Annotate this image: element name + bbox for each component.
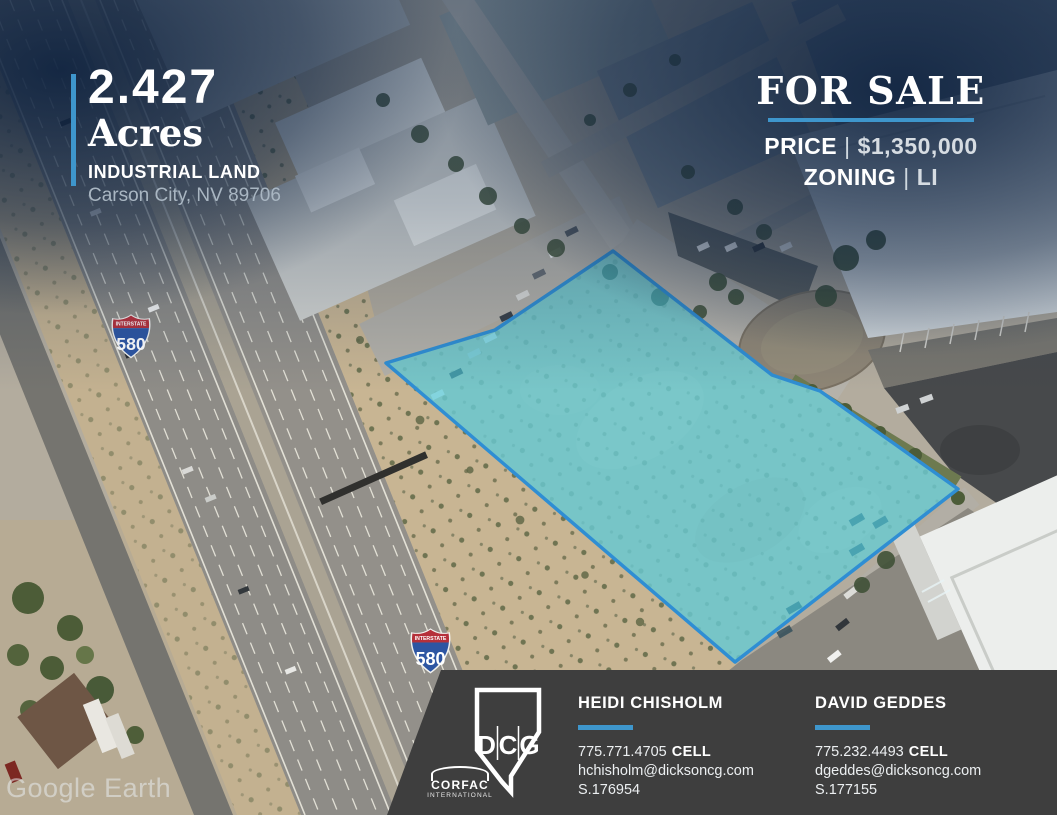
corfac-logo: CORFAC INTERNATIONAL bbox=[425, 766, 495, 800]
phone-number: 775.232.4493 bbox=[815, 744, 904, 760]
agent-card: HEIDI CHISHOLM 775.771.4705CELL hchishol… bbox=[578, 694, 828, 800]
zoning-separator: | bbox=[896, 164, 916, 190]
phone-type: CELL bbox=[672, 744, 711, 760]
agent-name: HEIDI CHISHOLM bbox=[578, 694, 828, 713]
agent-email: hchisholm@dicksoncg.com bbox=[578, 762, 828, 781]
property-type: INDUSTRIAL LAND bbox=[88, 162, 281, 183]
agent-phone: 775.232.4493CELL bbox=[815, 743, 1057, 762]
interstate-580-shield-icon: INTERSTATE 580 bbox=[111, 314, 151, 359]
agent-license: S.176954 bbox=[578, 781, 828, 800]
acreage-value: 2.427 bbox=[88, 64, 281, 112]
accent-bar bbox=[71, 74, 76, 186]
property-location: Carson City, NV 89706 bbox=[88, 185, 281, 207]
agent-accent-bar bbox=[815, 725, 870, 730]
zoning-line: ZONING|LI bbox=[804, 162, 938, 193]
acreage-unit: Acres bbox=[88, 114, 281, 153]
agent-name: DAVID GEDDES bbox=[815, 694, 1057, 713]
price-label: PRICE bbox=[764, 133, 837, 159]
interstate-580-shield-icon: INTERSTATE 580 bbox=[410, 628, 451, 674]
shield-number: 580 bbox=[415, 649, 445, 669]
for-sale-headline: FOR SALE bbox=[756, 70, 986, 112]
agent-license: S.177155 bbox=[815, 781, 1057, 800]
price-line: PRICE|$1,350,000 bbox=[764, 131, 977, 162]
property-summary: 2.427 Acres INDUSTRIAL LAND Carson City,… bbox=[88, 64, 281, 207]
corfac-name: CORFAC bbox=[425, 778, 495, 792]
headline-underline bbox=[768, 118, 974, 122]
phone-number: 775.771.4705 bbox=[578, 744, 667, 760]
shield-number: 580 bbox=[116, 334, 146, 354]
flyer-page: INTERSTATE 580 INTERSTATE 580 Google Ear… bbox=[0, 0, 1057, 815]
logo-letter-g: G bbox=[519, 730, 539, 760]
agent-card: DAVID GEDDES 775.232.4493CELL dgeddes@di… bbox=[815, 694, 1057, 800]
logo-letter-d: D bbox=[477, 730, 496, 760]
shield-label: INTERSTATE bbox=[116, 322, 147, 328]
sale-info: FOR SALE PRICE|$1,350,000 ZONING|LI bbox=[740, 70, 1002, 193]
phone-type: CELL bbox=[909, 744, 948, 760]
corfac-subtitle: INTERNATIONAL bbox=[425, 792, 495, 800]
price-separator: | bbox=[837, 133, 857, 159]
zoning-value: LI bbox=[917, 164, 938, 190]
zoning-label: ZONING bbox=[804, 164, 896, 190]
agent-accent-bar bbox=[578, 725, 633, 730]
agent-phone: 775.771.4705CELL bbox=[578, 743, 828, 762]
shield-label: INTERSTATE bbox=[415, 636, 447, 642]
price-value: $1,350,000 bbox=[858, 133, 978, 159]
google-earth-watermark: Google Earth bbox=[6, 773, 171, 804]
logo-letter-c: C bbox=[499, 730, 518, 760]
agent-email: dgeddes@dicksoncg.com bbox=[815, 762, 1057, 781]
